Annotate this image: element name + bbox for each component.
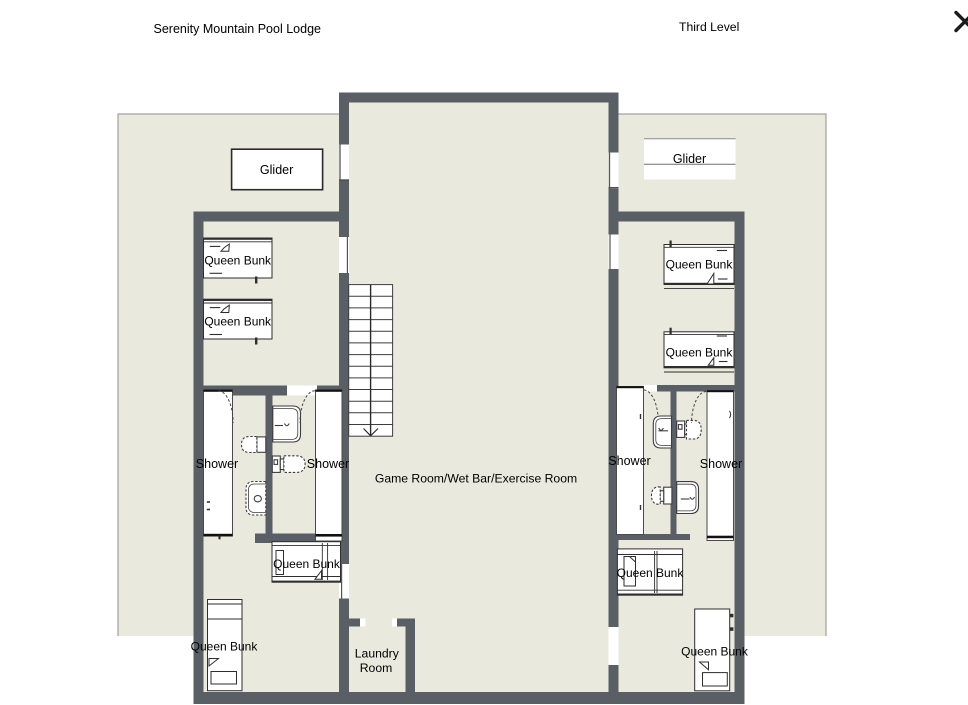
svg-text:Queen Bunk: Queen Bunk [666,258,734,272]
svg-text:Queen Bunk: Queen Bunk [204,315,272,329]
svg-text:Glider: Glider [673,152,706,166]
svg-text:Third Level: Third Level [679,20,739,34]
svg-text:Room: Room [360,661,393,675]
svg-text:Laundry: Laundry [355,646,400,660]
svg-text:Game Room/Wet Bar/Exercise Roo: Game Room/Wet Bar/Exercise Room [375,471,577,485]
svg-text:Queen Bunk: Queen Bunk [681,645,749,659]
svg-text:Queen Bunk: Queen Bunk [666,346,734,360]
svg-text:Shower: Shower [196,457,238,471]
svg-text:Queen Bunk: Queen Bunk [617,566,685,580]
svg-text:Glider: Glider [260,163,293,177]
svg-text:Queen Bunk: Queen Bunk [204,254,272,268]
svg-text:Shower: Shower [608,454,650,468]
svg-text:Queen Bunk: Queen Bunk [273,557,341,571]
svg-text:Shower: Shower [307,457,349,471]
svg-text:Queen Bunk: Queen Bunk [191,640,259,654]
svg-text:Shower: Shower [700,457,742,471]
svg-text:Serenity Mountain Pool Lodge: Serenity Mountain Pool Lodge [154,22,322,36]
